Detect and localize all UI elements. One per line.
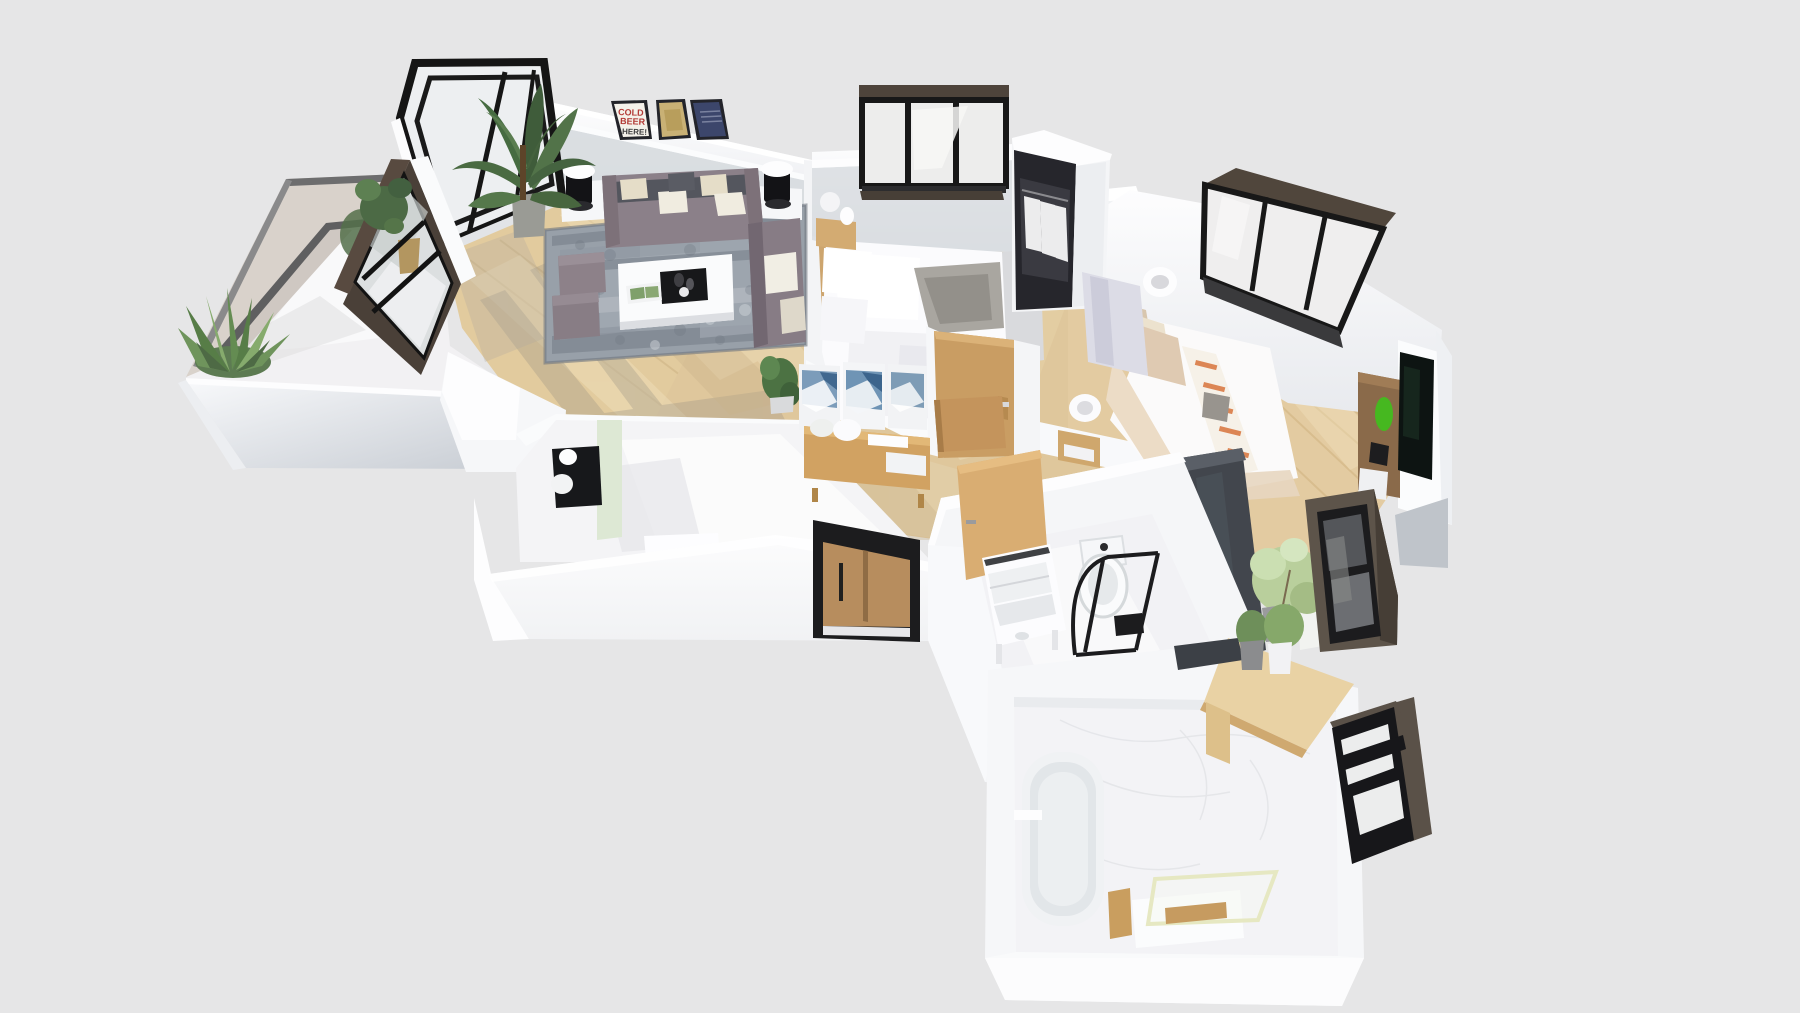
svg-text:BEER: BEER <box>620 116 646 127</box>
svg-text:HERE!: HERE! <box>622 127 647 137</box>
